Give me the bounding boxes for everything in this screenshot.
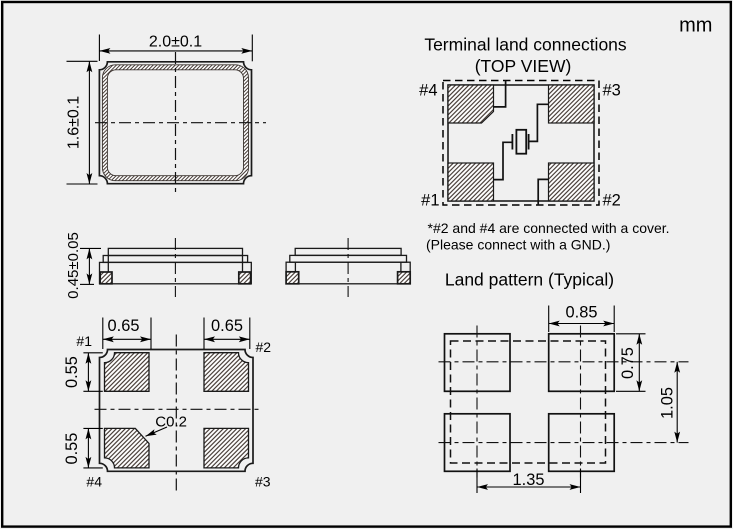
svg-text:#3: #3	[255, 473, 271, 489]
svg-text:#3: #3	[603, 82, 621, 100]
svg-text:#1: #1	[76, 333, 92, 349]
svg-text:Terminal land connections: Terminal land connections	[424, 35, 627, 55]
svg-text:0.75: 0.75	[619, 347, 637, 379]
svg-text:Land pattern (Typical): Land pattern (Typical)	[445, 270, 614, 290]
svg-text:*#2 and #4 are connected with: *#2 and #4 are connected with a cover.	[428, 220, 670, 236]
svg-text:1.35: 1.35	[513, 471, 545, 489]
svg-text:2.0±0.1: 2.0±0.1	[149, 33, 202, 50]
svg-text:1.6±0.1: 1.6±0.1	[65, 96, 82, 149]
svg-text:#4: #4	[86, 473, 102, 489]
svg-text:1.05: 1.05	[658, 387, 676, 419]
svg-text:(TOP VIEW): (TOP VIEW)	[475, 56, 572, 76]
svg-text:0.45±0.05: 0.45±0.05	[65, 232, 82, 299]
svg-text:0.55: 0.55	[63, 356, 81, 388]
svg-text:0.65: 0.65	[108, 317, 140, 335]
svg-text:#2: #2	[256, 339, 272, 355]
svg-text:#4: #4	[419, 82, 437, 100]
svg-text:mm: mm	[679, 14, 712, 36]
svg-text:0.55: 0.55	[63, 433, 81, 465]
svg-text:0.65: 0.65	[211, 317, 243, 335]
svg-text:(Please connect with a GND.): (Please connect with a GND.)	[426, 237, 610, 253]
svg-text:#2: #2	[603, 192, 621, 210]
svg-text:0.85: 0.85	[566, 304, 598, 322]
svg-text:#1: #1	[421, 192, 439, 210]
svg-text:C0.2: C0.2	[155, 414, 187, 431]
